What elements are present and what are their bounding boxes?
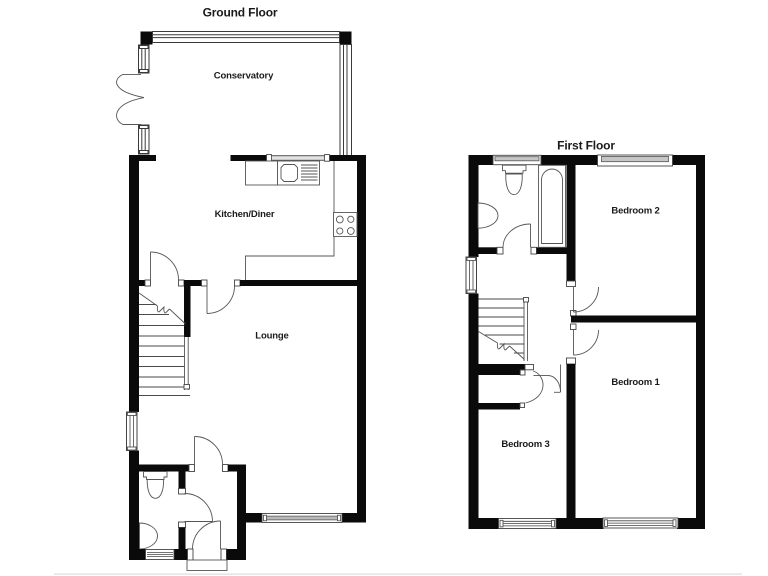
- svg-text:Kitchen/Diner: Kitchen/Diner: [215, 209, 275, 220]
- svg-text:Conservatory: Conservatory: [214, 71, 274, 82]
- svg-text:First Floor: First Floor: [557, 139, 615, 153]
- svg-text:Bedroom 3: Bedroom 3: [501, 439, 549, 450]
- svg-text:Lounge: Lounge: [255, 331, 288, 342]
- svg-text:Bedroom 2: Bedroom 2: [611, 206, 659, 217]
- svg-text:Ground Floor: Ground Floor: [203, 6, 278, 20]
- svg-text:Bedroom 1: Bedroom 1: [611, 377, 660, 388]
